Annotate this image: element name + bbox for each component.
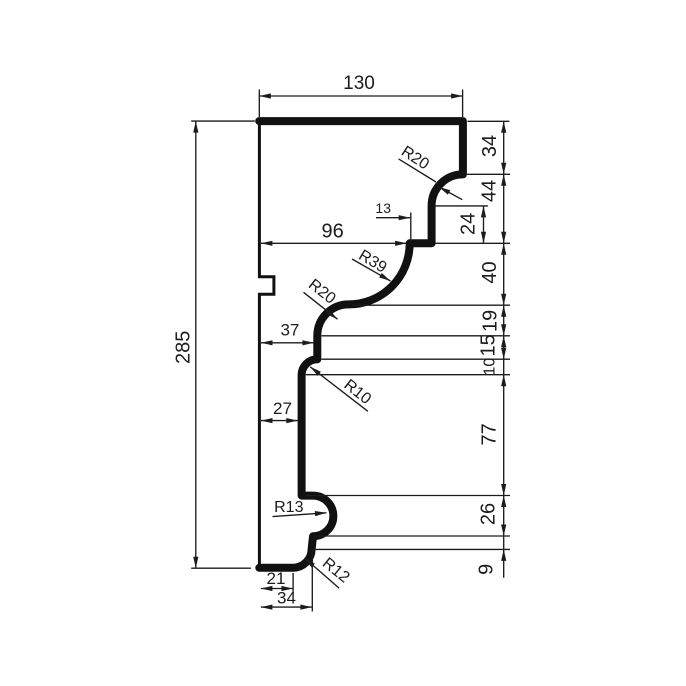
svg-text:44: 44 [479, 180, 501, 202]
svg-text:130: 130 [343, 73, 375, 94]
svg-text:96: 96 [321, 220, 343, 242]
svg-text:15: 15 [477, 334, 499, 356]
svg-text:26: 26 [478, 503, 500, 525]
svg-text:40: 40 [479, 261, 501, 283]
svg-text:77: 77 [478, 423, 500, 445]
svg-text:27: 27 [273, 399, 292, 418]
svg-text:21: 21 [267, 569, 286, 588]
svg-text:285: 285 [172, 331, 194, 364]
svg-text:13: 13 [375, 200, 391, 216]
svg-text:19: 19 [479, 310, 501, 332]
svg-text:10: 10 [481, 358, 498, 376]
svg-text:R13: R13 [274, 499, 303, 516]
svg-text:34: 34 [479, 135, 501, 157]
svg-text:37: 37 [280, 321, 299, 340]
svg-text:34: 34 [277, 589, 296, 608]
svg-text:9: 9 [475, 564, 497, 575]
svg-text:24: 24 [458, 213, 480, 235]
